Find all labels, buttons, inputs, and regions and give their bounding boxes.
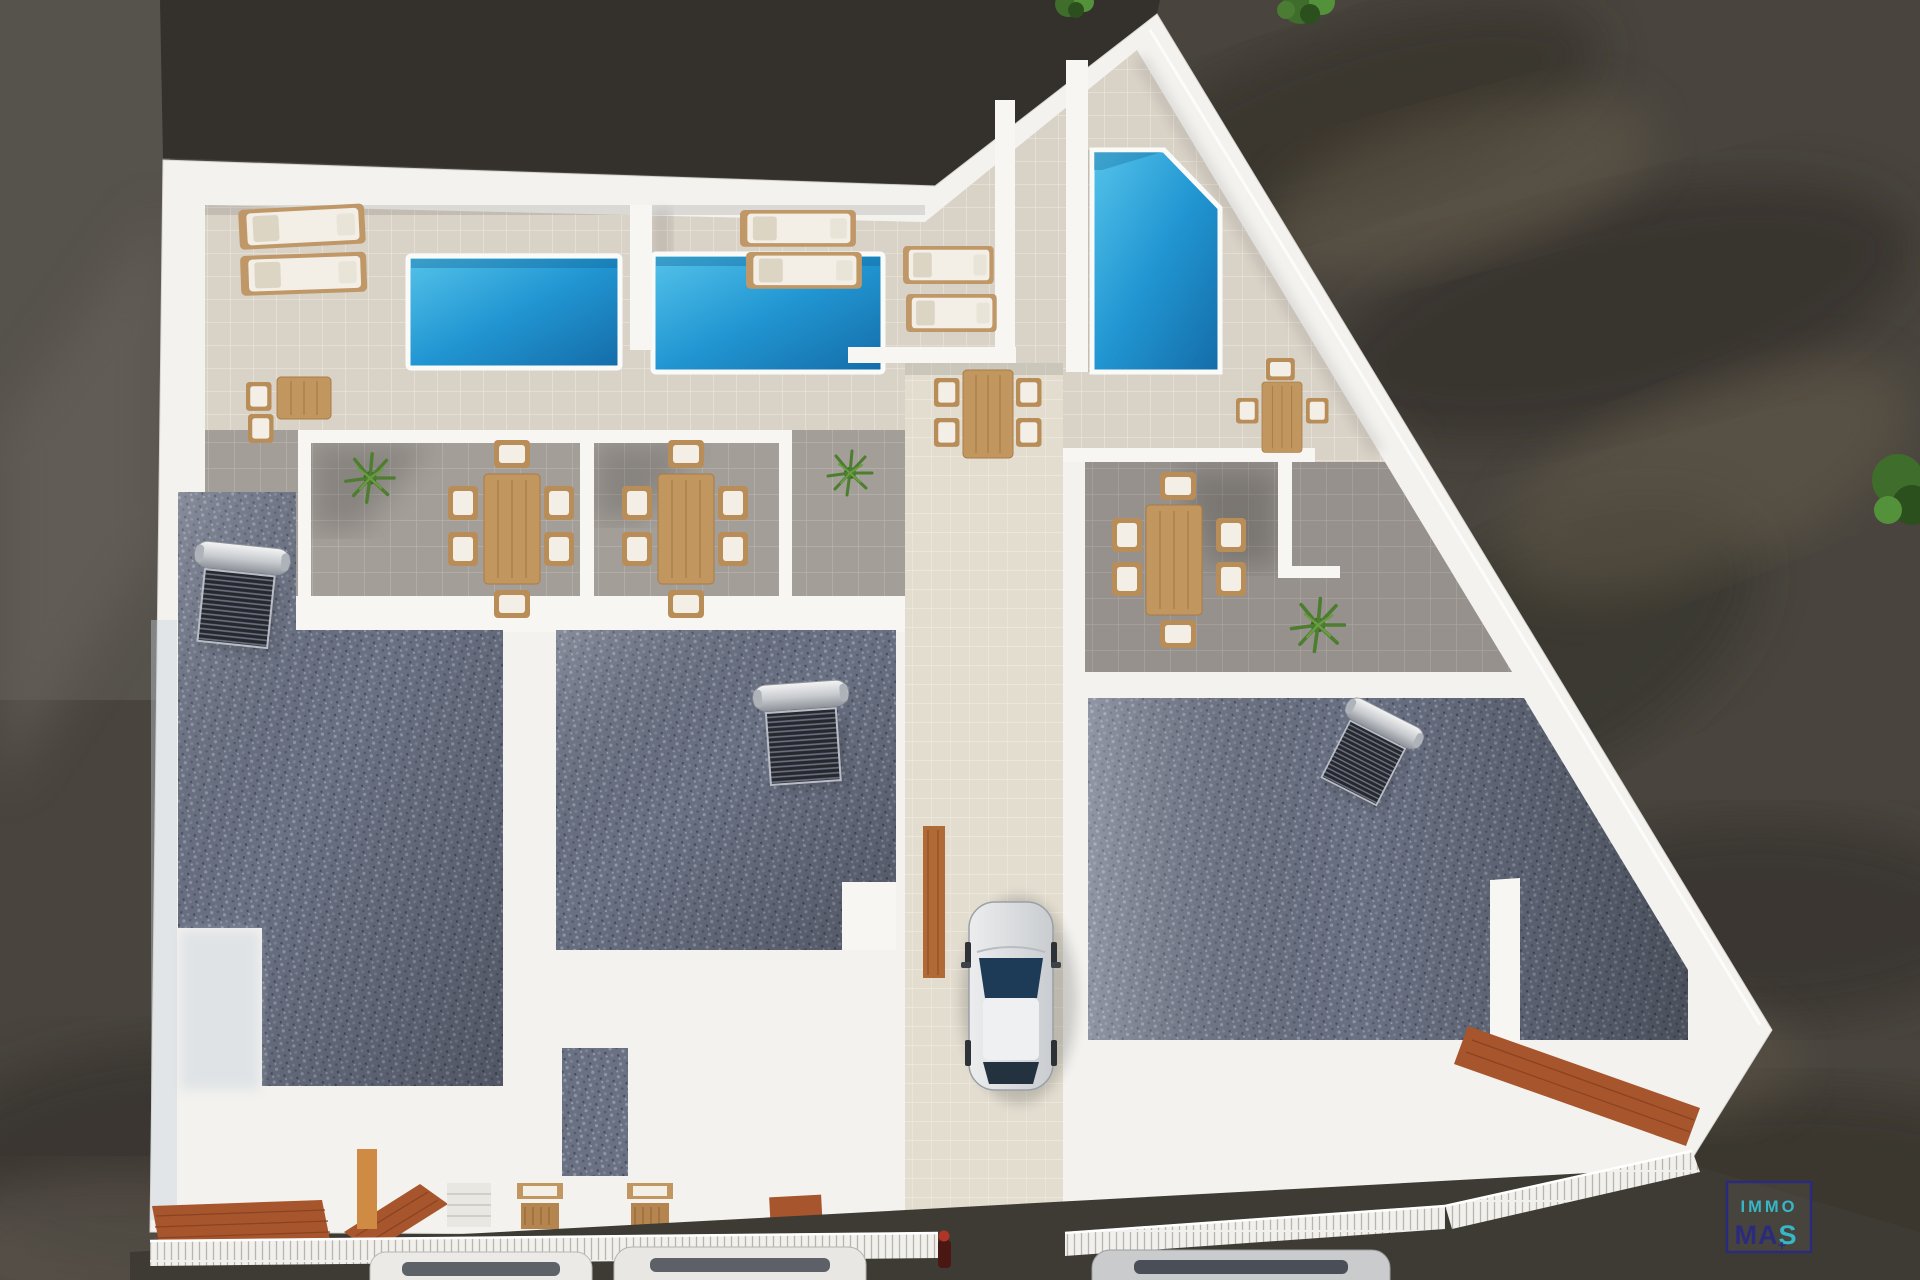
bench-front	[627, 1183, 673, 1229]
sun-lounger	[746, 252, 862, 289]
brand-logo: IMMO MAS +	[1727, 1182, 1811, 1253]
patio-wall-left	[298, 430, 311, 602]
wall-court-top	[848, 347, 1016, 363]
street-car-2	[614, 1247, 866, 1280]
logo-plus-icon: +	[1778, 1237, 1786, 1253]
driveway-car	[961, 896, 1077, 1104]
wall-lounger-terrace	[995, 100, 1015, 363]
car-roof	[983, 998, 1039, 1060]
sun-lounger	[240, 252, 367, 296]
court-shading	[180, 930, 260, 1090]
car-rear-window	[983, 1062, 1039, 1084]
left-wall-shading	[151, 620, 177, 1220]
sun-lounger	[238, 203, 366, 250]
sun-lounger	[903, 246, 994, 284]
sun-lounger	[740, 210, 856, 247]
patio-wall-bottom-band	[205, 596, 905, 632]
sun-lounger	[906, 294, 997, 332]
bush-right	[1872, 454, 1920, 525]
render-image: IMMO MAS +	[0, 0, 1920, 1280]
patio-wall-mid	[580, 430, 594, 602]
street-car-1	[370, 1252, 592, 1280]
pool-1	[408, 256, 620, 368]
bench-front	[517, 1183, 563, 1229]
street-car-3	[1092, 1250, 1390, 1280]
wood-post	[357, 1149, 377, 1229]
pedestrian-figure	[938, 1231, 951, 1269]
wood-gate-strip	[923, 826, 945, 978]
car-windshield	[979, 958, 1043, 998]
driveway-floor	[905, 363, 1063, 1240]
wall-between-pools	[630, 205, 652, 350]
wall-pool3-terrace	[1066, 60, 1088, 372]
patio-wall-right	[779, 430, 792, 602]
wall-right-patio-step-v	[1278, 462, 1292, 578]
logo-line1: IMMO	[1741, 1198, 1798, 1216]
wall-right-patio-step-h	[1278, 566, 1340, 578]
stairs-front	[447, 1183, 491, 1227]
patio-wall-top	[298, 430, 792, 443]
logo-line2: MAS	[1734, 1220, 1797, 1250]
